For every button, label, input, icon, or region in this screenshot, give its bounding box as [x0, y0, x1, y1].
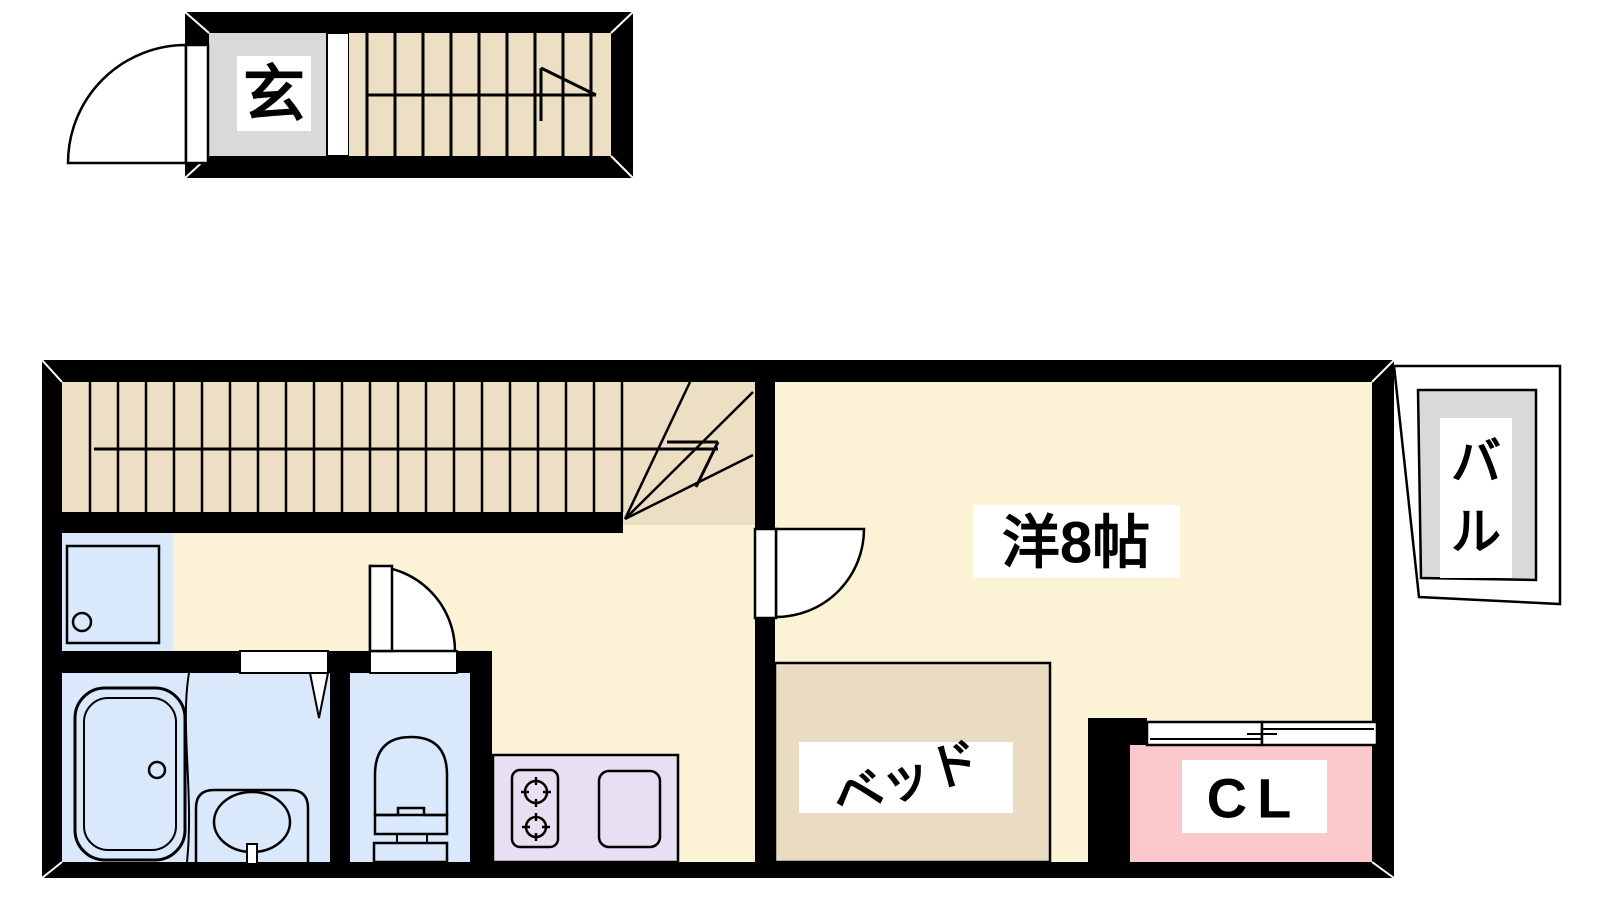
genkan-label-text: 玄	[243, 61, 305, 130]
balcony-label-line2: ル	[1451, 504, 1501, 560]
entrance-door	[68, 45, 208, 163]
main-structure: ベッド CL 洋8帖	[42, 360, 1394, 878]
toilet-right-wall	[470, 651, 492, 862]
floor-plan-drawing: 玄	[0, 0, 1600, 900]
toilet-door-leaf	[370, 566, 392, 651]
genkan-label: 玄	[237, 56, 311, 131]
main-staircase	[62, 382, 755, 533]
main-stairs-floor	[62, 382, 755, 525]
closet: CL	[1088, 718, 1377, 878]
stairs-lower-wall	[62, 512, 623, 533]
bed: ベッド	[775, 663, 1050, 862]
laundry-floor	[62, 533, 173, 651]
closet-sliding-door	[1147, 722, 1377, 745]
balcony: バ ル	[1394, 366, 1560, 604]
closet-label-text: CL	[1207, 767, 1302, 830]
bedroom-wall-upper	[755, 382, 775, 529]
floor-plan-canvas: 玄	[0, 0, 1600, 900]
balcony-label-line1: バ	[1451, 434, 1501, 490]
bathroom-door-opening	[240, 651, 328, 673]
washbasin-faucet	[247, 844, 257, 864]
entrance-step-strip	[327, 33, 349, 156]
laundry-area	[62, 533, 173, 651]
bedroom-wall-lower	[755, 618, 775, 862]
western-room-label: 洋8帖	[973, 505, 1180, 578]
bath-toilet-divider-wall	[330, 673, 350, 862]
western-room-label-text: 洋8帖	[1002, 511, 1150, 576]
entrance-door-leaf	[186, 45, 208, 163]
toilet-door-opening	[370, 651, 457, 673]
bedroom-door-leaf	[755, 529, 776, 618]
bathroom	[62, 651, 330, 864]
upper-staircase	[349, 33, 611, 156]
entrance-door-swing-arc	[68, 45, 186, 163]
entrance-structure: 玄	[68, 12, 633, 178]
kitchen	[493, 755, 678, 862]
